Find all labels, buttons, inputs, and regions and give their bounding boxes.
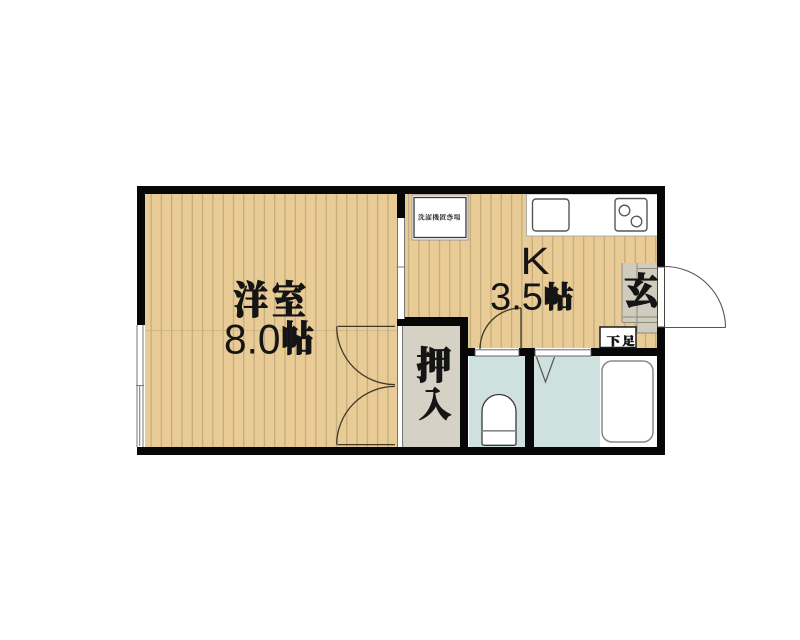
svg-text:8.0: 8.0: [224, 316, 281, 363]
svg-text:3.5: 3.5: [490, 277, 543, 319]
